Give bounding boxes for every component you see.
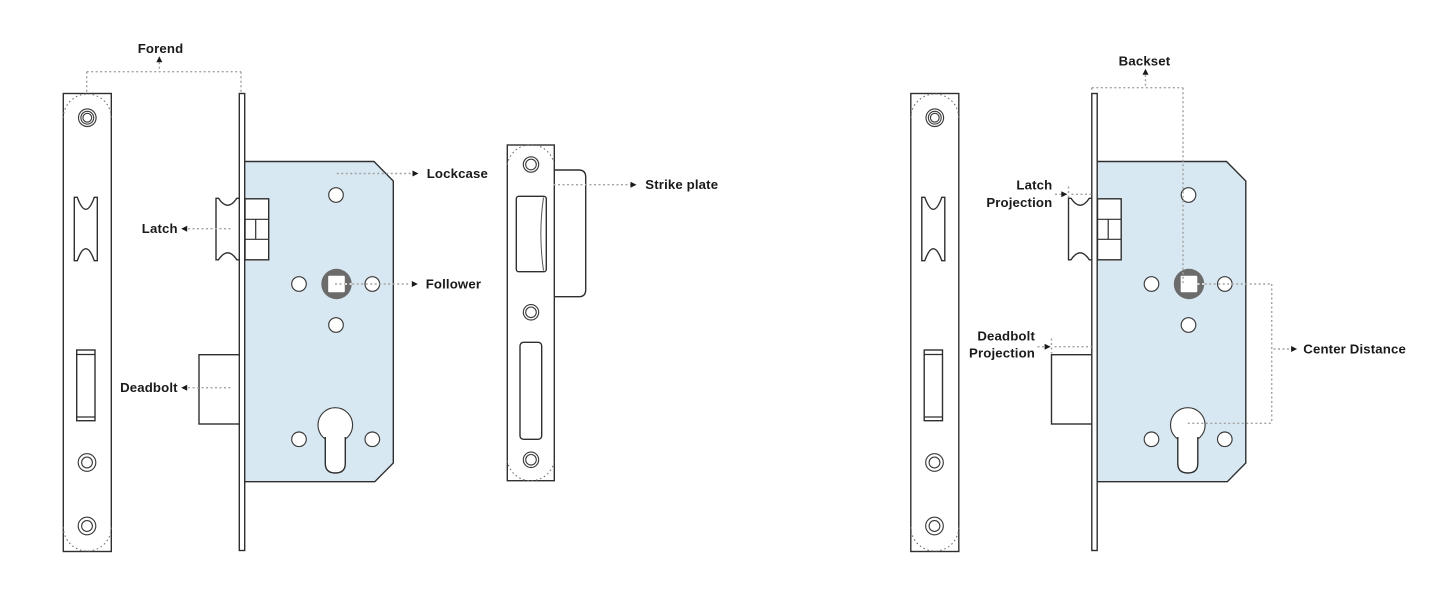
diagram-lock-dimensions: Backset Latch Projection Deadbolt Projec…	[911, 54, 1406, 552]
left-arrow-icon	[181, 385, 187, 391]
right-arrow-icon	[412, 281, 418, 287]
latch-projection-label-line2: Projection	[986, 195, 1052, 210]
forend-dimension-lines	[87, 62, 241, 92]
follower-label: Follower	[426, 277, 481, 292]
left-arrow-icon	[181, 226, 187, 232]
strike-plate	[507, 145, 585, 481]
backset-label: Backset	[1119, 54, 1171, 69]
forend-label: Forend	[138, 41, 184, 56]
strike-plate-lip	[554, 170, 585, 297]
deadbolt-projection-dimension-lines	[1052, 339, 1092, 354]
strike-plate-label: Strike plate	[645, 177, 718, 192]
front-plate	[63, 94, 111, 552]
front-plate	[911, 94, 959, 552]
strike-deadbolt-opening	[520, 342, 542, 439]
lock-assembly	[199, 94, 393, 551]
up-arrow-icon	[156, 56, 162, 62]
right-arrow-icon	[1045, 344, 1051, 350]
lock-assembly	[1052, 94, 1246, 551]
latch-projection-label-line1: Latch	[1016, 178, 1052, 193]
right-arrow-icon	[1061, 191, 1067, 197]
deadbolt-projection-label-line2: Projection	[969, 346, 1035, 361]
up-arrow-icon	[1143, 69, 1149, 75]
latch-projection-dimension-lines	[1069, 187, 1092, 200]
right-arrow-icon	[1291, 346, 1297, 352]
mortise-lock-diagram: Forend Latch Deadbolt Lockcase Follower …	[0, 0, 1434, 600]
latch-label: Latch	[142, 221, 178, 236]
lockcase-label: Lockcase	[427, 166, 488, 181]
deadbolt-label: Deadbolt	[120, 380, 178, 395]
right-arrow-icon	[631, 182, 637, 188]
diagram-lock-parts: Forend Latch Deadbolt Lockcase Follower …	[63, 41, 718, 552]
right-arrow-icon	[413, 171, 419, 177]
deadbolt-projection-label-line1: Deadbolt	[977, 329, 1035, 344]
left-annotations: Forend Latch Deadbolt Lockcase Follower …	[87, 41, 719, 395]
center-distance-label: Center Distance	[1303, 342, 1406, 357]
